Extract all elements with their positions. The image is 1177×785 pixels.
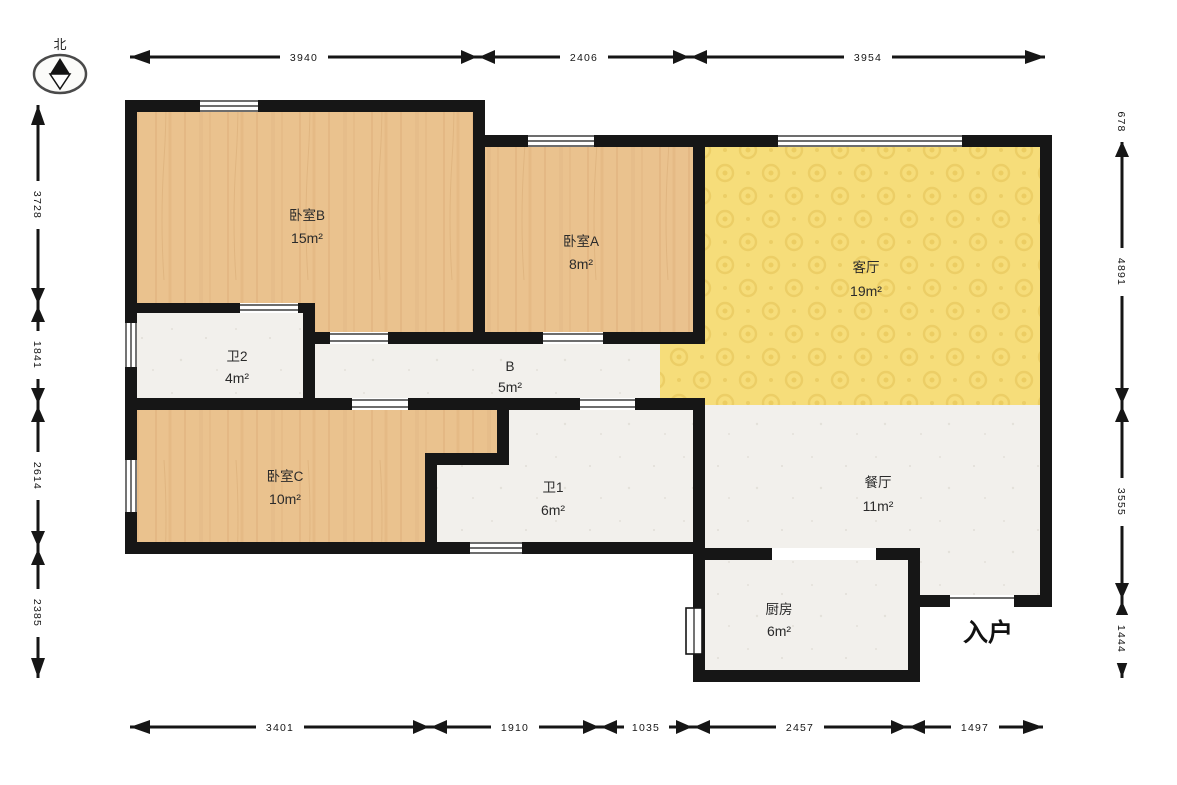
svg-text:3940: 3940 (290, 52, 318, 64)
svg-text:3555: 3555 (1115, 488, 1127, 516)
svg-text:4m²: 4m² (225, 370, 249, 386)
svg-text:1497: 1497 (961, 722, 989, 734)
svg-text:卫1: 卫1 (542, 480, 563, 495)
svg-text:卧室C: 卧室C (267, 468, 304, 484)
svg-text:8m²: 8m² (569, 256, 593, 272)
floors (137, 112, 1040, 670)
svg-text:2614: 2614 (31, 462, 43, 490)
svg-text:5m²: 5m² (498, 379, 522, 395)
svg-text:2457: 2457 (786, 722, 814, 734)
door-bath2 (240, 303, 298, 313)
svg-text:厨房: 厨房 (766, 602, 793, 617)
opening-kitchen (772, 548, 876, 560)
svg-text:6m²: 6m² (541, 502, 565, 518)
door-bedroom-a (543, 332, 603, 344)
svg-text:1841: 1841 (31, 341, 43, 369)
dimension-bottom: 3401 1910 1035 2457 1497 (130, 720, 1043, 734)
dimension-top: 3940 2406 3954 (130, 50, 1045, 64)
svg-text:4891: 4891 (1115, 258, 1127, 286)
door-bedroom-c (352, 398, 408, 410)
svg-text:3401: 3401 (266, 722, 294, 734)
svg-text:678: 678 (1115, 111, 1127, 132)
svg-text:3954: 3954 (854, 52, 882, 64)
svg-text:客厅: 客厅 (853, 259, 880, 275)
svg-text:3728: 3728 (31, 191, 43, 219)
svg-text:B: B (505, 359, 514, 374)
svg-text:11m²: 11m² (863, 498, 894, 514)
dimension-right: 678 4891 3555 1444 (1115, 102, 1129, 678)
door-bath1 (580, 398, 635, 410)
floor-bath2 (137, 313, 303, 398)
window-bedroom-b (200, 100, 258, 112)
svg-text:10m²: 10m² (269, 491, 301, 507)
compass-label: 北 (53, 37, 66, 52)
svg-text:卫2: 卫2 (226, 349, 247, 364)
svg-text:2406: 2406 (570, 52, 598, 64)
door-entry (950, 595, 1014, 607)
svg-text:6m²: 6m² (767, 623, 791, 639)
svg-text:19m²: 19m² (850, 283, 882, 299)
floor-living (660, 147, 1040, 405)
floor-plan-svg: 卧室B 15m² 卧室A 8m² 客厅 19m² 卫2 4m² B 5m² 卧室… (0, 0, 1177, 785)
window-bedroom-c (125, 460, 137, 512)
window-living (778, 135, 962, 147)
floor-plan-canvas: 卧室B 15m² 卧室A 8m² 客厅 19m² 卫2 4m² B 5m² 卧室… (0, 0, 1177, 785)
window-bath2 (125, 323, 137, 367)
door-kitchen-exterior (686, 608, 702, 654)
window-bath1 (470, 542, 522, 554)
dimension-left: 3728 1841 2614 2385 (31, 105, 45, 678)
door-bedroom-b (330, 332, 388, 344)
floor-kitchen (705, 560, 908, 670)
svg-text:2385: 2385 (31, 599, 43, 627)
svg-text:1035: 1035 (632, 722, 660, 734)
svg-text:卧室A: 卧室A (563, 233, 599, 249)
compass: 北 (34, 37, 86, 93)
svg-text:15m²: 15m² (291, 230, 323, 246)
svg-text:1444: 1444 (1115, 625, 1127, 653)
entry-label: 入户 (963, 618, 1013, 647)
window-bedroom-a (528, 135, 594, 147)
svg-text:餐厅: 餐厅 (865, 475, 892, 490)
svg-text:1910: 1910 (501, 722, 529, 734)
svg-text:卧室B: 卧室B (289, 207, 325, 223)
